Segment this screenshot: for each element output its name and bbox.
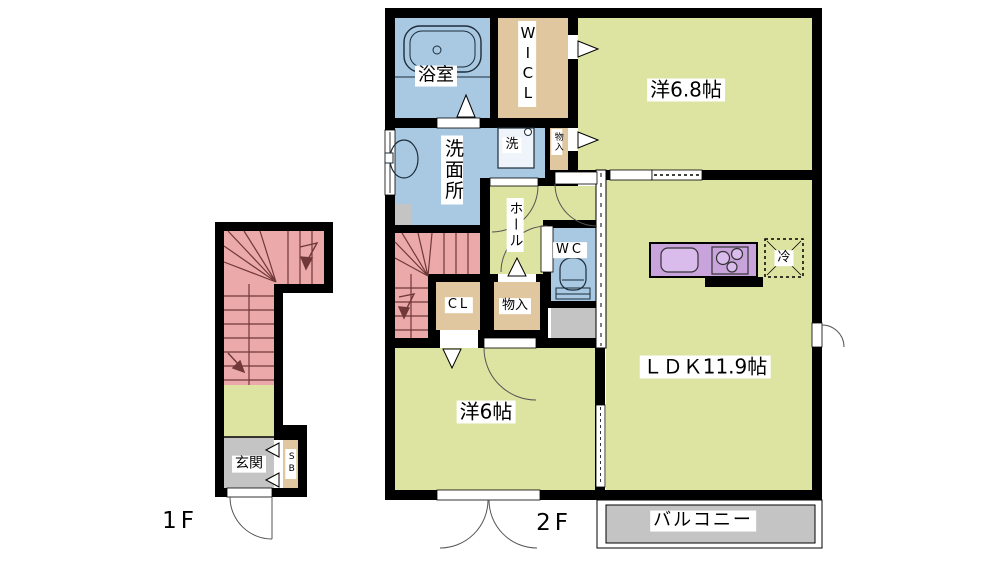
washing-machine-label: 洗 [502,137,521,153]
hall-washroom-door-gap [490,178,538,186]
wicl-door-gap [568,35,578,59]
stove-icon [712,247,748,274]
hall-label: ホール [507,198,524,252]
storage-lower-label: 物入 [499,298,531,314]
storage-upper-label: 物入 [551,129,562,155]
bedroom6-entry-gap [484,338,536,348]
1f-front-door-gap [227,488,272,497]
bedroom6-french-door-swing-left [440,500,488,548]
bedroom68-slider [610,170,652,180]
floor1-title: 1F [159,508,201,534]
kitchen-sink-icon [661,248,698,272]
floorplan-canvas: 浴室 WICL 洗面所 洗 物入 洋6.8帖 ホール WC CL 物入 洋6帖 … [0,0,1000,562]
ldk-hall-door-leaf [555,172,597,184]
cl-door-gap [440,330,478,348]
shoebox-label: SB [285,449,296,479]
floor2-title: 2F [533,510,575,536]
floor-1f-plan [215,222,333,539]
2f-meter-box [393,204,411,225]
bath-door-gap [437,118,480,128]
2f-stairs-upper [395,233,480,274]
floorplan-graphics [0,0,1000,562]
1f-hall-strip [224,385,274,437]
wc-label: WC [553,242,587,258]
refrigerator-label: 冷 [774,250,793,266]
2f-ldk-room [606,180,812,490]
bedroom68-window [652,170,702,180]
storage-upper-door-gap [568,128,578,151]
genkan-label: 玄関 [232,456,266,473]
2f-pipe-space [551,308,596,338]
bedroom6-french-door-gap [437,490,540,500]
bedroom6-french-door-swing-right [489,500,537,548]
balcony-label: バルコニー [650,511,756,532]
bedroom68-label: 洋6.8帖 [647,79,725,102]
wc-door-leaf [541,226,553,272]
washroom-label: 洗面所 [441,136,463,205]
ldk-label: ＬＤＫ11.9帖 [640,356,771,379]
wicl-label: WICL [518,21,536,107]
bedroom6-label: 洋6帖 [457,401,516,424]
1f-front-door-swing [230,497,272,539]
ldk-exterior-door-swing [822,325,844,347]
cl-label: CL [445,297,473,313]
ldk-exterior-door-gap [812,323,822,347]
bath-label: 浴室 [415,66,457,87]
floor-2f-plan [385,8,844,548]
